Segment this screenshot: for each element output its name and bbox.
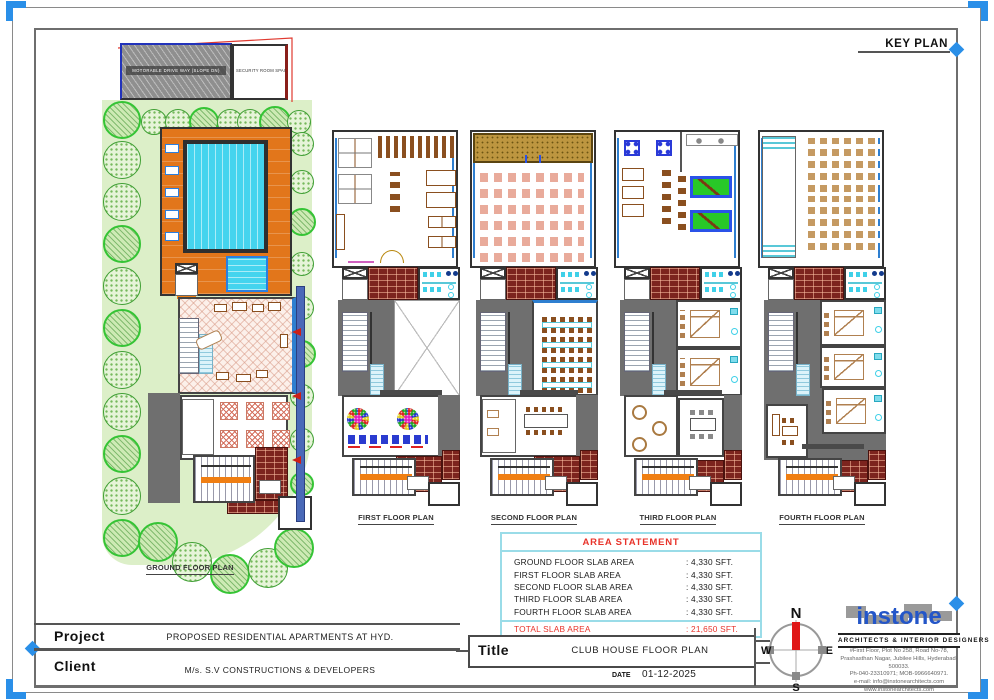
compass-north-label: N (791, 605, 802, 622)
area-row: SECOND FLOOR SLAB AREA: 4,330 SFT. (514, 581, 754, 593)
chair-row-icon (348, 435, 428, 444)
toilet-fixtures (705, 272, 725, 277)
bed-icon (834, 310, 864, 336)
wardrobe-icon (826, 398, 831, 424)
partition-wall (680, 132, 682, 172)
lounge-room (766, 404, 808, 458)
sofa-icon (772, 414, 780, 436)
sofa-icon (268, 302, 281, 311)
toilet-block (700, 267, 742, 300)
entry-arrow-icon (292, 456, 301, 464)
lift (480, 279, 506, 300)
key-plan-underline (858, 51, 950, 53)
titleblock-line (754, 628, 756, 686)
audience-seating (480, 172, 584, 262)
area-total-label: TOTAL SLAB AREA (514, 624, 686, 634)
project-value: PROPOSED RESIDENTIAL APARTMENTS AT HYD. (130, 632, 430, 642)
area-row-value: : 4,330 SFT. (686, 594, 733, 604)
window-band (617, 138, 619, 258)
screen-wall (762, 136, 796, 258)
toilet-fixtures (705, 287, 725, 292)
dining-table-row (542, 357, 592, 373)
area-row-label: FIRST FLOOR SLAB AREA (514, 570, 686, 580)
counter-icon (686, 134, 738, 146)
bed-icon (690, 358, 720, 386)
wash-basin-icon (735, 271, 740, 276)
wc-icon (731, 376, 738, 383)
ground-floor-plan: MOTORABLE DRIVE WAY (SLOPE DN) SECURITY … (96, 34, 324, 586)
restaurant-room (624, 395, 678, 457)
area-row: FOURTH FLOOR SLAB AREA: 4,330 SFT. (514, 606, 754, 618)
tree-icon (103, 519, 141, 557)
area-row-value: : 4,330 SFT. (686, 557, 733, 567)
lift (342, 279, 368, 300)
firm-address-line: www.instonearchitects.com (838, 687, 960, 695)
kids-pool (226, 256, 268, 292)
tree-icon (290, 252, 314, 276)
toilet-fixtures (561, 287, 581, 292)
paved-floor (724, 450, 742, 480)
pool-lounger-icon (165, 166, 179, 175)
sofa-icon (252, 304, 264, 312)
wash-basin-icon (453, 271, 458, 276)
key-plan-label: KEY PLAN (850, 38, 948, 50)
stair-landing (201, 477, 251, 483)
area-row: GROUND FLOOR SLAB AREA: 4,330 SFT. (514, 556, 754, 568)
window-band (734, 138, 736, 258)
area-row-label: THIRD FLOOR SLAB AREA (514, 594, 686, 604)
third-floor-plan-label-text: THIRD FLOOR PLAN (640, 513, 717, 525)
tree-icon (103, 267, 141, 305)
compound-wall (296, 286, 305, 522)
screen-panel-icon (763, 245, 795, 257)
conference-chairs (526, 430, 566, 435)
chair-row-icon (782, 440, 798, 445)
title-label: Title (478, 642, 509, 658)
wc-icon (586, 292, 592, 298)
dining-table-icon (272, 430, 290, 448)
area-statement-rows: GROUND FLOOR SLAB AREA: 4,330 SFT. FIRST… (514, 556, 754, 618)
toilet-fixtures (423, 272, 443, 277)
mosaic-floor-icon (347, 408, 369, 430)
sofa-icon (232, 302, 247, 311)
area-row-value: : 4,330 SFT. (686, 570, 733, 580)
stair-landing (786, 474, 838, 480)
dining-table-icon (220, 402, 238, 420)
wash-basin-icon (872, 271, 877, 276)
firm-tagline: ARCHITECTS & INTERIOR DESIGNERS (838, 633, 960, 648)
driveway (148, 393, 180, 503)
stair-shaft (342, 267, 368, 279)
compass-rose: N S W E (760, 602, 834, 692)
lift (768, 279, 794, 300)
lift-room (428, 482, 460, 506)
pool-lounger-icon (165, 232, 179, 241)
area-row-value: : 4,330 SFT. (686, 582, 733, 592)
card-table-icon (656, 140, 672, 156)
firm-address-line: Ph-040-23310971; MOB-9966640971. (838, 671, 960, 679)
bed-icon (690, 310, 720, 338)
room-label-band (802, 444, 864, 449)
round-table-icon (632, 405, 647, 420)
corner-bracket-icon (968, 679, 988, 699)
toilet-fixtures (423, 287, 443, 292)
wardrobe-icon (824, 354, 829, 380)
driveway-ramp-label: MOTORABLE DRIVE WAY (SLOPE DN) (126, 66, 226, 75)
stair-shaft (480, 267, 506, 279)
dining-table-icon (272, 402, 290, 420)
tree-icon (103, 351, 141, 389)
stair-shaft (624, 267, 650, 279)
corridor-paving (794, 267, 844, 300)
bath-fixture-icon (730, 356, 738, 363)
security-room-label: SECURITY ROOM SPACE (236, 68, 286, 73)
chair-column-icon (678, 174, 686, 230)
carrom-table-icon (622, 204, 644, 217)
wardrobe-icon (824, 310, 829, 336)
wardrobe-icon (680, 310, 685, 338)
wc-icon (731, 328, 738, 335)
area-row: THIRD FLOOR SLAB AREA: 4,330 SFT. (514, 593, 754, 605)
long-table-icon (542, 322, 592, 328)
stair-landing (498, 474, 550, 480)
firm-address-line: e-mail: info@instonearchitects.com (838, 679, 960, 687)
area-row-label: SECOND FLOOR SLAB AREA (514, 582, 686, 592)
chair-row-icon (690, 434, 716, 439)
theater-seating (808, 196, 880, 250)
stair-block (193, 455, 255, 503)
tree-icon (103, 435, 141, 473)
paved-floor (868, 450, 886, 480)
lift-room (278, 496, 312, 530)
meeting-room (678, 398, 724, 457)
sofa-icon (256, 370, 268, 378)
stair-arrow (786, 466, 838, 468)
desk-icon (487, 410, 499, 418)
fourth-floor-plan (756, 128, 888, 506)
area-row-label: GROUND FLOOR SLAB AREA (514, 557, 686, 567)
wc-icon (448, 292, 454, 298)
theater-seating (808, 138, 880, 192)
tree-icon (103, 393, 141, 431)
wardrobe-icon (680, 358, 685, 386)
tree-icon (103, 141, 141, 179)
dining-table-icon (246, 430, 264, 448)
paved-floor (442, 450, 460, 480)
stair-arrow (642, 466, 694, 468)
sofa-icon (236, 374, 251, 382)
fourth-floor-plan-label-text: FOURTH FLOOR PLAN (779, 513, 864, 525)
stair-shaft (768, 267, 794, 279)
lift (624, 279, 650, 300)
corner-bracket-icon (968, 1, 988, 21)
sofa-icon (216, 372, 229, 380)
toilet-room (689, 476, 711, 490)
wc-icon (730, 284, 736, 290)
stair-flight (342, 312, 368, 372)
chair-row-icon (782, 418, 798, 423)
treadmill-row-icon (378, 136, 456, 158)
conference-chairs (526, 407, 566, 412)
bath-fixture-icon (874, 395, 882, 402)
table-icon (782, 426, 798, 436)
lift-room (566, 482, 598, 506)
wash-basin-icon (446, 271, 451, 276)
swimming-pool (183, 140, 268, 253)
tree-icon (172, 542, 212, 582)
sofa-icon (428, 236, 456, 248)
bath-fixture-icon (874, 353, 882, 360)
pool-lounger-icon (165, 144, 179, 153)
second-floor-plan (468, 128, 600, 506)
wc-icon (586, 284, 592, 290)
wc-icon (448, 284, 454, 290)
screen-panel-icon (763, 137, 795, 149)
compass-south-label: S (792, 682, 799, 692)
client-value: M/s. S.V CONSTRUCTIONS & DEVELOPERS (130, 665, 430, 675)
carrom-table-icon (622, 186, 644, 199)
dining-room (532, 300, 598, 396)
area-total-row: TOTAL SLAB AREA: 21,650 SFT. (502, 620, 760, 636)
billiards-table-icon (690, 176, 732, 198)
wc-icon (874, 284, 880, 290)
firm-block: instone ARCHITECTS & INTERIOR DESIGNERS … (838, 602, 960, 688)
stair-flight (796, 364, 810, 396)
toilet-fixtures (849, 287, 869, 292)
toilet-room (259, 480, 281, 494)
corner-bracket-icon (6, 679, 26, 699)
area-row-value: : 4,330 SFT. (686, 607, 733, 617)
entry-arrow-icon (292, 392, 301, 400)
gym-bench-icon (426, 192, 456, 208)
ground-floor-plan-label: GROUND FLOOR PLAN (110, 563, 270, 575)
cabin (482, 399, 516, 453)
pool-lounger-icon (165, 210, 179, 219)
wc-icon (875, 370, 882, 377)
stair-flight (624, 312, 650, 372)
wash-basin-icon (584, 271, 589, 276)
stair-landing (642, 474, 694, 480)
wc-icon (730, 292, 736, 298)
side-corridor (438, 395, 460, 457)
stair-arrow (201, 465, 251, 467)
wash-basin-icon (879, 271, 884, 276)
lift (175, 274, 198, 296)
gym-equipment-icon (390, 172, 400, 212)
compass-west-label: W (761, 645, 772, 657)
chair-column-icon (662, 164, 671, 224)
conference-table-icon (524, 414, 568, 428)
gym-bench-icon (426, 170, 456, 186)
guest-bedroom (820, 346, 886, 388)
toilet-fixtures (849, 272, 869, 277)
first-floor-plan-label: FIRST FLOOR PLAN (336, 513, 456, 525)
third-floor-plan (612, 128, 744, 506)
firm-logo-text: instone (838, 602, 960, 632)
guest-bedroom (676, 348, 742, 396)
toilet-block (418, 267, 460, 300)
sofa-icon (214, 304, 227, 312)
meeting-table-icon (690, 418, 716, 431)
tree-icon (103, 309, 141, 347)
lift-room (854, 482, 886, 506)
toilet-room (407, 476, 429, 490)
stair-flight (768, 312, 794, 372)
pantry (182, 399, 214, 455)
desk-icon (487, 428, 499, 436)
long-table-icon (542, 342, 592, 348)
area-total-value: : 21,650 SFT. (686, 624, 738, 634)
round-table-icon (632, 437, 647, 452)
paved-floor (580, 450, 598, 480)
sofa-icon (280, 334, 288, 348)
billiards-table-icon (690, 210, 732, 232)
pool-lounger-icon (165, 188, 179, 197)
double-height-space (394, 300, 460, 396)
cabinet-icon (336, 214, 345, 250)
title-value: CLUB HOUSE FLOOR PLAN (540, 645, 740, 656)
stair-landing (360, 474, 412, 480)
long-table-icon (542, 362, 592, 368)
corridor-paving (650, 267, 700, 300)
logo-art: instone (838, 602, 960, 632)
bath-fixture-icon (874, 307, 882, 314)
wash-basin-icon (728, 271, 733, 276)
table-tennis-icon (338, 174, 372, 204)
stair-flight (179, 318, 199, 374)
corridor-paving (368, 267, 418, 300)
titleblock-line (34, 623, 460, 625)
ground-floor-plan-label-text: GROUND FLOOR PLAN (146, 563, 234, 575)
tree-icon (288, 208, 316, 236)
titleblock-line (34, 648, 460, 651)
toilet-block (556, 267, 598, 300)
side-corridor (576, 395, 598, 457)
area-row: FIRST FLOOR SLAB AREA: 4,330 SFT. (514, 568, 754, 580)
carrom-table-icon (622, 168, 644, 181)
stair-shaft (175, 263, 198, 274)
round-table-icon (652, 421, 667, 436)
bath-fixture-icon (730, 308, 738, 315)
entry-arrow-icon (292, 328, 301, 336)
counter-line (348, 261, 374, 263)
dining-table-icon (246, 402, 264, 420)
toilet-room (545, 476, 567, 490)
tree-icon (103, 225, 141, 263)
compass-east-label: E (826, 645, 833, 657)
fourth-floor-plan-label: FOURTH FLOOR PLAN (762, 513, 882, 525)
firm-address: #First Floor, Plot No 258, Road No-78, P… (838, 648, 960, 695)
tree-icon (290, 170, 314, 194)
second-floor-plan-label-text: SECOND FLOOR PLAN (491, 513, 577, 525)
third-floor-plan-label: THIRD FLOOR PLAN (618, 513, 738, 525)
project-label: Project (54, 628, 105, 644)
area-statement-table: AREA STATEMENT GROUND FLOOR SLAB AREA: 4… (500, 532, 762, 638)
table-label-ticks (348, 446, 428, 448)
tree-icon (290, 132, 314, 156)
wc-icon (874, 292, 880, 298)
guest-bedroom (676, 300, 742, 348)
drawing-sheet: KEY PLAN (0, 0, 994, 700)
side-corridor (724, 395, 742, 457)
area-statement-title: AREA STATEMENT (502, 534, 760, 552)
stage-marker-icon (525, 155, 541, 163)
sofa-icon (428, 216, 456, 228)
second-floor-plan-label: SECOND FLOOR PLAN (474, 513, 594, 525)
wc-icon (875, 326, 882, 333)
corridor-paving (506, 267, 556, 300)
long-table-icon (542, 382, 592, 388)
tree-icon (274, 528, 314, 568)
area-row-label: FOURTH FLOOR SLAB AREA (514, 607, 686, 617)
toilet-block (844, 267, 886, 300)
wash-basin-icon (591, 271, 596, 276)
date-label: DATE (612, 672, 631, 679)
bed-icon (834, 354, 864, 380)
toilet-room (833, 476, 855, 490)
guest-bedroom (820, 300, 886, 346)
tree-icon (103, 183, 141, 221)
dining-table-row (542, 337, 592, 353)
firm-address-line: #First Floor, Plot No 258, Road No-78, (838, 648, 960, 656)
lift-room (710, 482, 742, 506)
stair-arrow (360, 466, 412, 468)
chair-row-icon (690, 410, 716, 415)
card-table-icon (624, 140, 640, 156)
guest-bedroom (822, 388, 886, 434)
client-label: Client (54, 658, 96, 674)
dining-table-icon (220, 430, 238, 448)
date-value: 01-12-2025 (642, 669, 696, 680)
stair-arrow (498, 466, 550, 468)
corner-bracket-icon (6, 1, 26, 21)
firm-address-line: Prashasthan Nagar, Jubilee Hills, Hydera… (838, 656, 960, 672)
first-floor-plan-label-text: FIRST FLOOR PLAN (358, 513, 434, 525)
bed-icon (836, 398, 866, 424)
dining-table-row (542, 317, 592, 333)
table-tennis-icon (338, 138, 372, 168)
tree-icon (103, 477, 141, 515)
wc-icon (875, 414, 882, 421)
toilet-fixtures (561, 272, 581, 277)
mosaic-floor-icon (397, 408, 419, 430)
stair-flight (480, 312, 506, 372)
first-floor-plan (330, 128, 462, 506)
